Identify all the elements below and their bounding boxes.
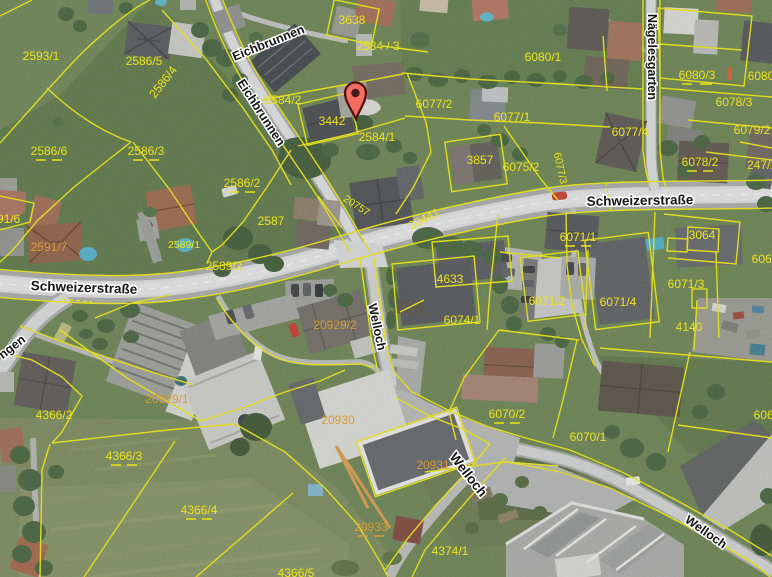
svg-text:4140: 4140 [676,320,703,334]
svg-text:2591/7: 2591/7 [31,240,68,254]
svg-text:6077/1: 6077/1 [494,110,531,124]
svg-text:6074/1: 6074/1 [444,313,481,327]
svg-text:4366/4: 4366/4 [181,503,218,517]
svg-text:2589/1: 2589/1 [168,239,200,251]
svg-text:4366/3: 4366/3 [106,449,143,463]
svg-text:6078/3: 6078/3 [716,95,753,109]
svg-text:Schweizerstraße: Schweizerstraße [587,192,694,209]
svg-text:6071/1: 6071/1 [560,230,597,244]
svg-text:3064: 3064 [689,228,716,242]
svg-text:3857: 3857 [467,153,494,167]
svg-text:6080/2: 6080/2 [748,69,772,83]
svg-text:6078/2: 6078/2 [682,155,719,169]
svg-text:6071/2: 6071/2 [529,294,566,308]
svg-text:3638: 3638 [339,13,366,27]
svg-text:6070/1: 6070/1 [570,430,607,444]
svg-text:6066/3: 6066/3 [752,252,772,266]
svg-text:20929/2: 20929/2 [313,318,357,332]
svg-text:2584/2: 2584/2 [265,93,302,107]
svg-text:4366/5: 4366/5 [278,566,315,577]
svg-text:Nägelesgarten: Nägelesgarten [645,14,659,100]
svg-text:6080/3: 6080/3 [679,68,716,82]
svg-text:6075/2: 6075/2 [503,160,540,174]
svg-text:6077/2: 6077/2 [416,97,453,111]
svg-text:2584 / 3: 2584 / 3 [356,39,400,53]
svg-text:6080/1: 6080/1 [525,50,562,64]
svg-text:2586/3: 2586/3 [128,144,165,158]
svg-text:4633: 4633 [437,272,464,286]
svg-text:20930: 20930 [321,413,355,427]
svg-text:6071/3: 6071/3 [668,277,705,291]
svg-text:2584/1: 2584/1 [359,130,396,144]
svg-text:4374/1: 4374/1 [432,544,469,558]
svg-text:2593/1: 2593/1 [23,49,60,63]
svg-text:20929/1: 20929/1 [145,392,189,406]
svg-text:6079/2: 6079/2 [734,123,771,137]
svg-text:3442: 3442 [319,114,346,128]
svg-text:247/1: 247/1 [747,158,772,172]
svg-text:2586/2: 2586/2 [224,176,261,190]
svg-text:2586/5: 2586/5 [126,54,163,68]
svg-text:2586/6: 2586/6 [31,144,68,158]
svg-text:2589/2: 2589/2 [206,259,243,273]
svg-text:6070/2: 6070/2 [489,407,526,421]
svg-text:2587: 2587 [258,214,285,228]
svg-text:20931: 20931 [416,458,450,472]
svg-text:4366/2: 4366/2 [36,408,73,422]
svg-text:6071/4: 6071/4 [600,295,637,309]
svg-text:6069/1: 6069/1 [754,408,772,422]
svg-text:2591/6: 2591/6 [0,212,21,226]
svg-text:20933: 20933 [354,520,388,534]
svg-text:6077/4: 6077/4 [612,125,649,139]
